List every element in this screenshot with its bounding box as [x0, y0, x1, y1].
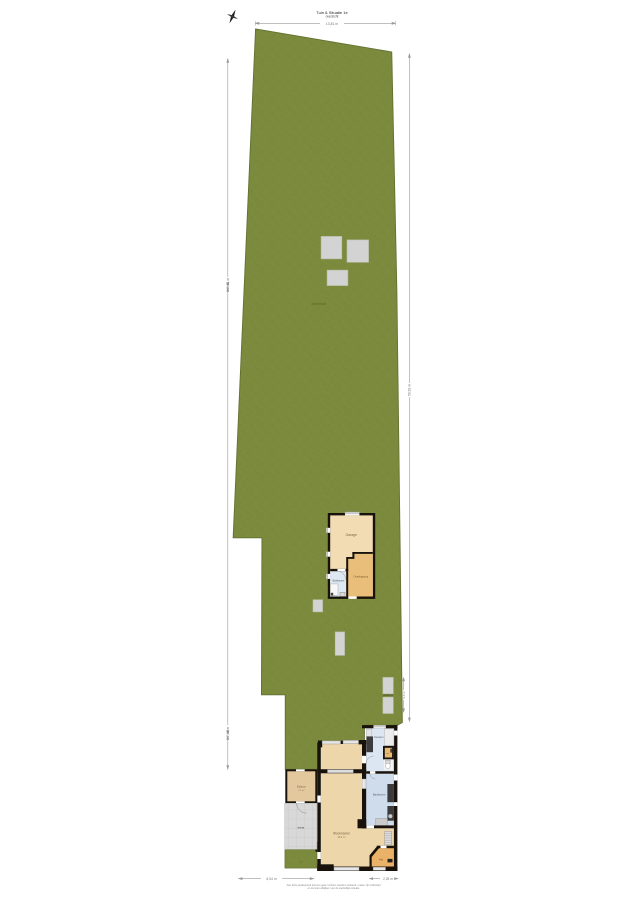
svg-text:Keuken: Keuken	[374, 735, 384, 739]
svg-text:43,6 m²: 43,6 m²	[337, 836, 345, 839]
svg-text:6,04 m: 6,04 m	[266, 877, 277, 881]
svg-text:Overkapping: Overkapping	[353, 574, 368, 578]
svg-text:Hal: Hal	[379, 857, 383, 861]
svg-text:parkeren: parkeren	[383, 693, 394, 697]
svg-text:59,63 m: 59,63 m	[408, 384, 412, 396]
svg-text:terras: terras	[298, 826, 305, 830]
svg-text:Badkamer: Badkamer	[333, 578, 345, 582]
svg-text:overzicht: overzicht	[326, 15, 339, 19]
svg-text:46,81 m: 46,81 m	[226, 278, 230, 290]
svg-text:achtertuin: achtertuin	[312, 302, 327, 306]
svg-text:7,18 m: 7,18 m	[226, 727, 230, 738]
svg-text:2,28 m: 2,28 m	[383, 877, 393, 881]
svg-text:Badkamer: Badkamer	[373, 793, 386, 797]
svg-text:Schuur: Schuur	[297, 785, 306, 789]
svg-text:5,0 m: 5,0 m	[402, 691, 406, 699]
svg-text:13,81 m: 13,81 m	[326, 22, 338, 26]
svg-text:Woonkamer: Woonkamer	[333, 832, 351, 836]
svg-text:Garage: Garage	[346, 533, 357, 537]
svg-text:en kunnen afwijken van de werk: en kunnen afwijken van de werkelijke sit…	[308, 886, 360, 890]
svg-text:7,9 m²: 7,9 m²	[298, 789, 304, 792]
